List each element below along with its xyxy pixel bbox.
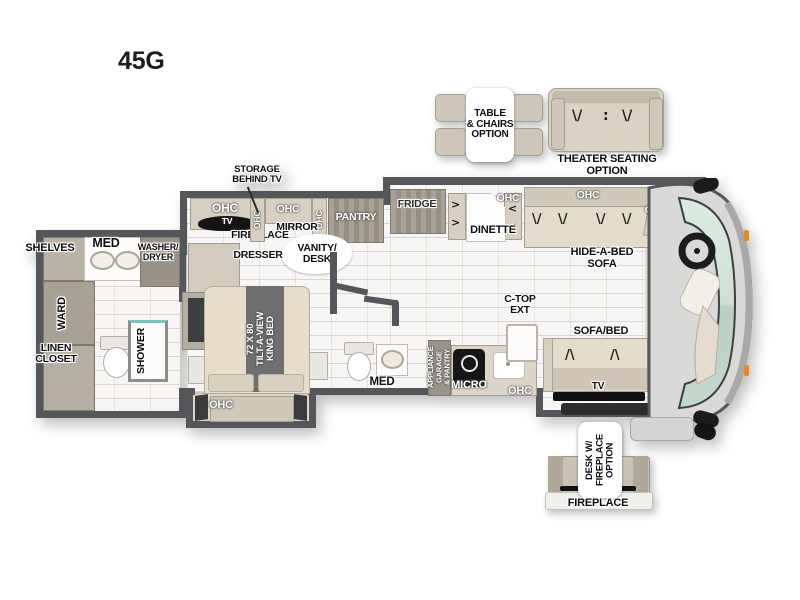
fireplace-option-label: FIREPLACE — [562, 498, 634, 510]
living-tv-icon — [553, 392, 645, 401]
sofa-bed-label: SOFA/BED — [556, 326, 646, 338]
mirror-label: MIRROR — [262, 222, 332, 233]
kitchen-ohc-label: OHC — [496, 386, 544, 398]
storage-behind-tv-label: STORAGEBEHIND TV — [214, 165, 300, 186]
bedroom-tv-label: TV — [214, 217, 240, 226]
bed-pillow — [258, 374, 304, 392]
fridge-label: FRIDGE — [390, 199, 444, 210]
med-cabinet-label: MED — [86, 237, 126, 251]
marker-light-icon — [744, 365, 749, 376]
marker-light-icon — [744, 230, 749, 241]
seat-stitch-icon: /\ — [565, 348, 575, 363]
pantry-label: PANTRY — [329, 212, 383, 223]
seat-stitch-icon: \/ — [622, 212, 632, 227]
wall — [36, 411, 186, 418]
wardrobe-label: WARD — [57, 288, 69, 340]
ctop-ext-label: C-TOPEXT — [490, 294, 550, 317]
seat-stitch-icon: /\ — [610, 348, 620, 363]
fridge — [390, 189, 446, 234]
living-ohc2-label: OHC — [570, 190, 606, 201]
coach-body: SHELVES MED WASHER/DRYER WARD LINENCLOSE… — [0, 0, 800, 600]
seat-stitch-icon: > — [451, 216, 460, 229]
washer-dryer-label: WASHER/DRYER — [132, 243, 184, 262]
bedroom-ohc-mid-label: OHC — [268, 204, 308, 215]
front-cap — [635, 178, 755, 428]
seat-stitch-icon: \/ — [558, 212, 568, 227]
bed-ohc-label: OHC — [196, 400, 246, 412]
desk-option-label: DESK W/FIREPLACEOPTION — [578, 422, 622, 498]
dresser-label: DRESSER — [226, 250, 290, 261]
countertop-extension — [506, 324, 538, 362]
shower — [128, 320, 168, 382]
floorplan-45g: 45G TABLE & CHAIRS OPTION \/ : \/ THEATE… — [0, 0, 800, 600]
dinette-label: DINETTE — [460, 225, 526, 237]
nightstand — [308, 352, 328, 380]
shower-label: SHOWER — [136, 324, 147, 378]
shelves-label: SHELVES — [20, 243, 80, 255]
wardrobe — [43, 281, 95, 345]
sink-icon — [381, 350, 404, 369]
wall — [180, 191, 390, 198]
sink-icon — [90, 251, 115, 270]
seat-stitch-icon: \/ — [596, 212, 606, 227]
seat-stitch-icon: \/ — [532, 212, 542, 227]
bedroom-ohc-label: OHC — [198, 202, 252, 215]
seat-stitch-icon: > — [451, 198, 460, 211]
bed-slide-window-icon — [294, 394, 307, 421]
bath-med-label: MED — [360, 376, 404, 388]
linen-closet-label: LINENCLOSET — [24, 343, 88, 366]
steering-wheel-icon — [694, 248, 700, 254]
faucet-icon — [506, 362, 510, 366]
desk-fireplace-option: DESK W/FIREPLACEOPTION FIREPLACE — [545, 420, 655, 516]
bed-slide-wall — [186, 421, 316, 428]
micro-label: MICRO — [442, 380, 496, 392]
wall — [383, 177, 390, 205]
bed-pillow — [208, 374, 254, 392]
wall — [36, 230, 43, 418]
sofa-bed-armrest — [543, 338, 553, 392]
vanity-desk-label: VANITY/DESK — [282, 234, 352, 274]
toilet-icon — [103, 347, 130, 378]
living-ohc-label: OHC — [490, 193, 526, 204]
cooktop-burner-icon — [461, 355, 478, 372]
bath-wall — [392, 302, 399, 326]
